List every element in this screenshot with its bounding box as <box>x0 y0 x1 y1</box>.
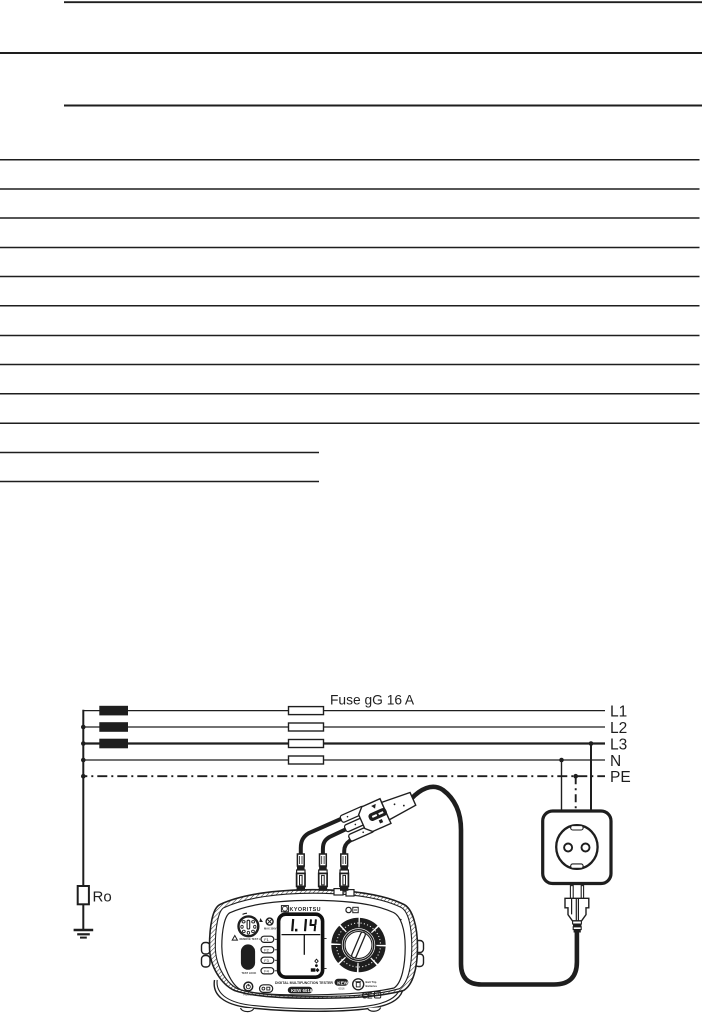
svg-text:Batteries: Batteries <box>366 984 378 988</box>
svg-text:KYORITSU: KYORITSU <box>290 907 321 913</box>
svg-text:POWER: POWER <box>244 993 254 997</box>
svg-text:N: N <box>610 753 621 770</box>
svg-text:TEST LOCK: TEST LOCK <box>242 971 257 975</box>
svg-text:KEW 6016: KEW 6016 <box>291 988 313 993</box>
svg-text:MAX 300V: MAX 300V <box>264 927 277 931</box>
svg-text:Ro: Ro <box>93 889 112 906</box>
svg-text:F1: F1 <box>264 937 269 942</box>
svg-text:L3: L3 <box>610 736 627 753</box>
svg-text:L2: L2 <box>610 720 627 737</box>
svg-text:DIGITAL MULTIFUNCTION TESTER: DIGITAL MULTIFUNCTION TESTER <box>275 981 333 985</box>
svg-text:L1: L1 <box>610 703 627 720</box>
svg-text:F2: F2 <box>264 948 269 953</box>
svg-text:F3: F3 <box>264 958 269 963</box>
svg-text:KEW: KEW <box>337 980 348 985</box>
svg-text:6016: 6016 <box>339 986 345 990</box>
svg-text:CE: CE <box>362 991 373 1001</box>
svg-text:Fuse gG 16 A: Fuse gG 16 A <box>330 692 415 707</box>
svg-text:Batt Trip: Batt Trip <box>366 980 377 984</box>
svg-text:PE: PE <box>610 769 631 786</box>
